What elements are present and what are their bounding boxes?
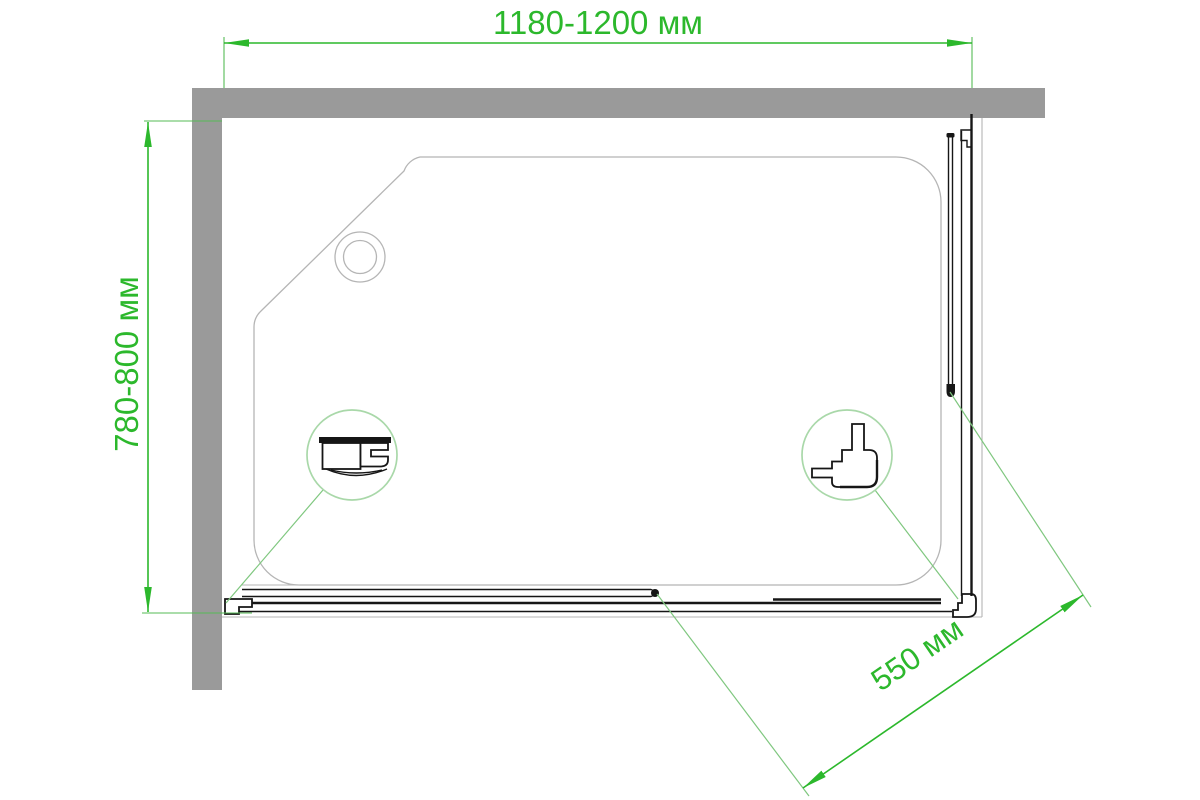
drain-inner bbox=[344, 241, 377, 274]
leader-door-edge bbox=[657, 594, 809, 796]
detail-circle-right bbox=[802, 410, 892, 500]
shower-enclosure-plan: 1180-1200 мм 780-800 мм 550 мм bbox=[0, 0, 1200, 800]
side-panel-top-cap bbox=[947, 133, 955, 138]
shower-tray bbox=[222, 118, 982, 617]
side-panel-assembly bbox=[947, 114, 972, 596]
technical-drawing-canvas: 1180-1200 мм 780-800 мм 550 мм bbox=[0, 0, 1200, 800]
side-panel-bottom-cap bbox=[947, 384, 956, 397]
tray-outline bbox=[254, 157, 941, 585]
bottom-rail-assembly bbox=[225, 589, 976, 617]
detail-left-box bbox=[323, 443, 361, 469]
leader-right-detail bbox=[875, 490, 958, 599]
dimension-depth: 780-800 мм bbox=[108, 121, 252, 613]
wall-left bbox=[192, 88, 222, 690]
leader-left-detail bbox=[226, 490, 323, 603]
wall-top bbox=[192, 88, 1045, 118]
sliding-door-glass bbox=[242, 590, 654, 597]
dimension-width: 1180-1200 мм bbox=[224, 4, 972, 88]
drain-outer bbox=[335, 232, 385, 282]
dimension-door: 550 мм bbox=[803, 595, 1083, 788]
dimension-width-label: 1180-1200 мм bbox=[493, 4, 703, 41]
wall-mount-profile bbox=[961, 130, 972, 147]
detail-circle-left bbox=[307, 410, 397, 500]
dimension-depth-label: 780-800 мм bbox=[108, 276, 145, 452]
